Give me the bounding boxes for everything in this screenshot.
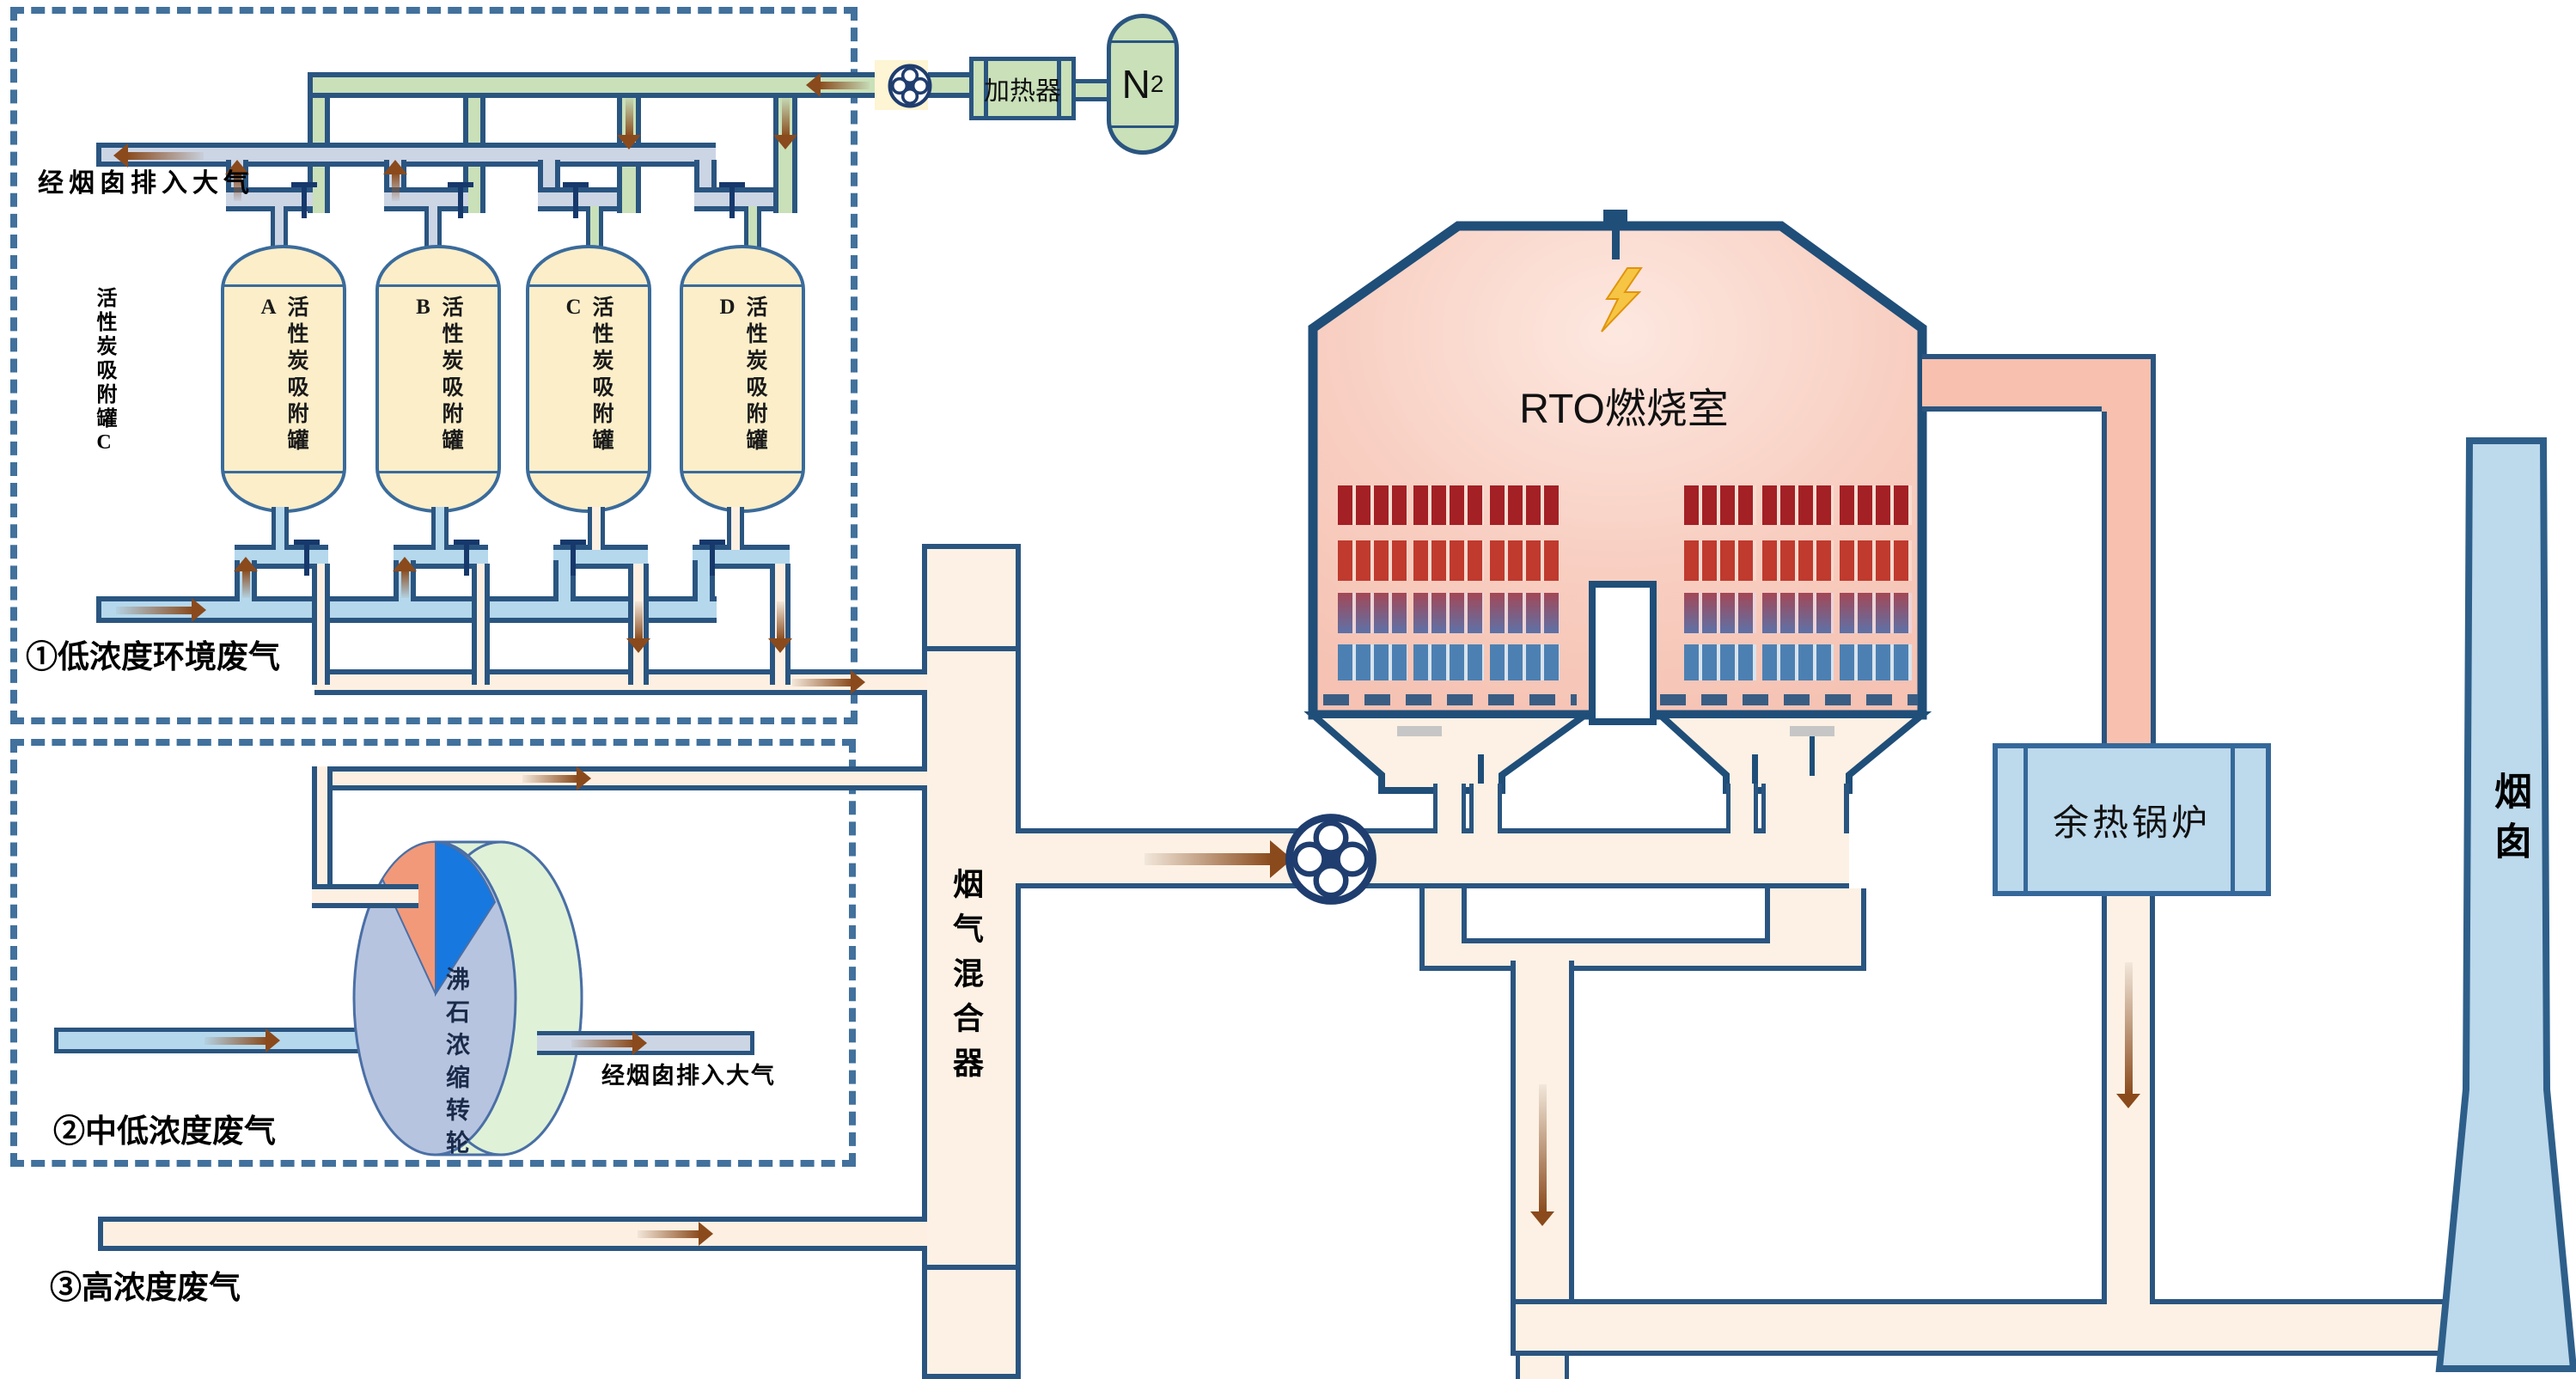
- mixer-label: 烟气混合器: [943, 868, 988, 1091]
- tank-c-top-valve: [563, 182, 589, 218]
- carbon-tank-c: 活性炭吸附罐C: [526, 245, 651, 513]
- n2-tank: N2: [1107, 14, 1179, 155]
- chimney-body: [2439, 441, 2573, 1369]
- waste-heat-boiler: 余热锅炉: [1993, 743, 2271, 896]
- feed-flow-arrow: [116, 599, 206, 621]
- n2-circulation-fan-icon: [888, 64, 932, 108]
- n2-label: N2: [1111, 18, 1175, 150]
- n2-down-arrow-c: [616, 98, 642, 149]
- tank-a-bottom-valve: [294, 540, 320, 576]
- chimney: [2423, 434, 2576, 1375]
- media-bed-right-row2: [1684, 540, 1912, 581]
- desorption-flow-arrow: [522, 768, 591, 789]
- n2-subscript: 2: [1151, 70, 1164, 98]
- tank-d-bottom-valve: [699, 540, 725, 576]
- carbon-tank-d: 活性炭吸附罐D: [680, 245, 805, 513]
- hopper-tab-right: [1790, 726, 1834, 736]
- media-bed-right-row4: [1684, 644, 1912, 680]
- rotor-label: 沸石浓缩转轮: [438, 967, 473, 1162]
- rotor-inlet-arrow: [204, 1029, 280, 1052]
- tank-d-top-valve: [719, 182, 745, 218]
- media-bed-right-row3: [1684, 593, 1912, 633]
- left-hopper-stub2: [1469, 784, 1502, 833]
- purified-gas-down-arrow: [1529, 1084, 1555, 1226]
- stream3-label: ③高浓度废气: [50, 1261, 241, 1308]
- tank-shoulder-line: [529, 471, 648, 473]
- tank-b-bottom-valve: [454, 540, 479, 576]
- to-atmosphere-rotor-label: 经烟囱排入大气: [601, 1057, 776, 1090]
- tank-b-top-valve: [448, 182, 473, 218]
- desorption-outlet-pipe: [312, 766, 927, 790]
- carbon-tank-a: 活性炭吸附罐A: [221, 245, 346, 513]
- stack-run-left-stub: [1516, 1356, 1569, 1379]
- stack-feed-run-pipe: [1511, 1299, 2457, 1356]
- tank-d-drop-down-arrow: [767, 601, 793, 653]
- rto-label: RTO燃烧室: [1461, 375, 1787, 435]
- rto-outlet-loop-hole: [1462, 888, 1770, 943]
- tank-c-label: 活性炭吸附罐C: [529, 296, 648, 468]
- high-concentration-pipe: [98, 1217, 927, 1251]
- tank-shoulder-line: [379, 471, 497, 473]
- tank-c-bottom-valve: [560, 540, 586, 576]
- hopper-tab-left: [1397, 726, 1442, 736]
- tank-shoulder-line: [224, 471, 343, 473]
- rto-feed-arrow: [1145, 839, 1292, 880]
- tank-shoulder-line: [224, 284, 343, 287]
- rto-outlet-hot-elbow: [2102, 354, 2156, 412]
- tank-d-bottom-pipe: [727, 507, 744, 550]
- burner-port: [1603, 210, 1627, 222]
- heater-label: 加热器: [974, 61, 1071, 116]
- to-atmosphere-top-label: 经烟囱排入大气: [38, 162, 254, 199]
- tank-a-feed-up-arrow: [233, 557, 259, 598]
- boiler-outlet-down-arrow: [2115, 962, 2141, 1108]
- tank-b-drop-pipe: [472, 564, 490, 685]
- carbon-bank-side-label: 活性炭吸附罐C: [89, 287, 119, 457]
- tank-d-label: 活性炭吸附罐D: [683, 296, 802, 468]
- right-hopper-stub2: [1761, 784, 1849, 833]
- tank-shoulder-line: [683, 284, 802, 287]
- media-bed-right-row1: [1684, 485, 1912, 525]
- rto-outlet-hot-pipe: [1922, 354, 2102, 412]
- tank-shoulder-line: [683, 471, 802, 473]
- media-bed-left-row2: [1338, 540, 1560, 581]
- boiler-label: 余热锅炉: [1998, 748, 2266, 891]
- process-flow-diagram: 经烟囱排入大气 活性炭吸附罐A 活性炭吸附罐B 活性炭吸附罐C 活性炭吸附罐D …: [0, 0, 2576, 1379]
- heater: 加热器: [969, 57, 1076, 120]
- media-support-dashes-right: [1660, 694, 1918, 705]
- rto-center-channel: [1592, 584, 1653, 722]
- n2-symbol: N: [1122, 61, 1151, 107]
- hot-gas-down-pipe: [2102, 412, 2156, 747]
- rto-left-hopper: [1313, 715, 1585, 790]
- left-hopper-stub1: [1433, 784, 1466, 833]
- rto-inlet-fan-icon: [1285, 813, 1377, 906]
- tank-a-drop-pipe: [312, 564, 330, 685]
- tank-a-bottom-pipe: [272, 507, 289, 550]
- tank-c-bottom-pipe: [588, 507, 605, 550]
- high-concentration-arrow: [638, 1222, 713, 1246]
- tank-shoulder-line: [379, 284, 497, 287]
- tank-b-feed-up-arrow: [392, 557, 418, 598]
- flame-spark-icon: [1596, 266, 1648, 335]
- rto-inlet-manifold: [1360, 828, 1849, 888]
- tank-b-bottom-pipe: [431, 507, 449, 550]
- desorption-stub-pipe: [312, 884, 418, 908]
- media-bed-left-row4: [1338, 644, 1560, 680]
- tank-b-label: 活性炭吸附罐B: [379, 296, 497, 468]
- tank-a-top-valve: [291, 182, 317, 218]
- tank-b-up-arrow: [382, 160, 408, 201]
- hopper-probe-right2: [1810, 736, 1815, 776]
- right-hopper-stub1: [1726, 784, 1758, 833]
- stream2-label: ②中低浓度废气: [53, 1105, 276, 1151]
- burner-lance: [1612, 222, 1620, 259]
- rotor-outlet-arrow: [571, 1032, 647, 1054]
- media-support-dashes-left: [1323, 694, 1577, 705]
- n2-header-pipe: [308, 72, 969, 98]
- n2-down-arrow-d: [772, 98, 798, 149]
- media-bed-left-row3: [1338, 593, 1560, 633]
- chimney-label: 烟囱: [2481, 772, 2536, 871]
- mixer-division-line: [922, 1265, 1021, 1270]
- mixer-division-line: [922, 646, 1021, 651]
- tank-a-label: 活性炭吸附罐A: [224, 296, 343, 468]
- n2-flow-arrow: [806, 74, 870, 96]
- stream1-label: ①低浓度环境废气: [26, 631, 280, 677]
- tank-shoulder-line: [529, 284, 648, 287]
- carbon-tank-b: 活性炭吸附罐B: [375, 245, 501, 513]
- collection-flow-arrow: [792, 671, 865, 693]
- tank-c-drop-down-arrow: [626, 601, 651, 653]
- media-bed-left-row1: [1338, 485, 1560, 525]
